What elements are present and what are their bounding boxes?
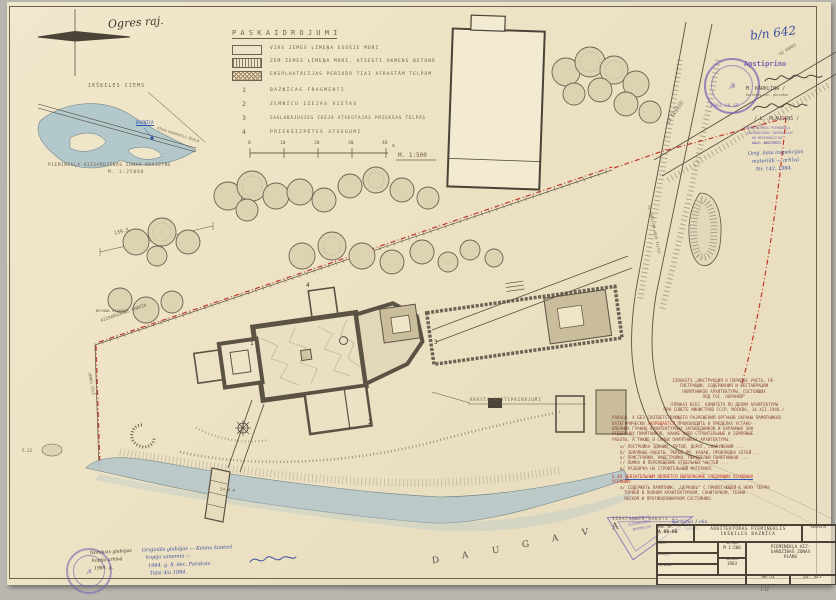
date-value: 1963	[718, 562, 746, 567]
section-label: § 49	[612, 474, 622, 479]
legend-title: P A S K A I D R O J U M I	[232, 29, 337, 39]
right-note: Nr. 142, 1984.	[756, 165, 793, 172]
inset-caption: PIEMINEKĻA AIZSARDZĪBAS ZONAS NOVIETNE	[48, 163, 171, 168]
signature-bottom	[248, 552, 298, 568]
approver-name-2: / L. PLAUCIŅŠ /	[754, 116, 799, 122]
extract-heading: ПОД ГОС. ОХРАНОЙ“	[612, 394, 836, 399]
drawing-title: PLĀNS	[746, 555, 835, 560]
inset-caption-scale: M. 1:25000	[108, 170, 144, 175]
approver-name-1-sub: Kultūras min. pārstāve	[746, 93, 788, 97]
paragraph-text: БЕЗ СООТВЕТСТВУЮЩЕГО РАЗРЕШЕНИЯ ОРГАНОВ …	[637, 415, 781, 420]
outbuilding-1	[556, 396, 584, 432]
river-name-letter: A	[551, 534, 559, 545]
title-block-cell: AB-51	[745, 574, 791, 585]
sheet-number: AB-51	[761, 575, 774, 580]
river-name-letter: U	[491, 546, 500, 557]
bank-reinforcement-label: KRASTA NOSTIPRINĀJUMI	[470, 397, 542, 402]
monument-name: IKŠĶILES BAZNĪCA	[694, 532, 802, 537]
mound	[689, 193, 721, 266]
row-label: Zīmēja	[658, 552, 670, 556]
office-line: AIZSARDZĪBAS INSPEKCIJAS	[747, 131, 793, 135]
extract-order: ПРИ СОВЕТЕ МИНИСТРОВ СССР, МОСКВА, 14.XI…	[612, 407, 836, 412]
church-ruins	[187, 276, 433, 448]
bottom-note-black: 1984. g.	[94, 566, 113, 572]
river-name-letter: G	[521, 540, 530, 551]
legend-num-label: SAGLABĀJUSIES IEEJA ATSEGTAJĀS PRIEKŠAS …	[270, 116, 426, 121]
scale-ratio: M. 1:500	[398, 152, 427, 159]
approve-word: Apstiprinu	[744, 60, 786, 68]
scanned-site-plan-sheet: Ogres raj. b/n 642 P A S K A I D R O J U…	[0, 0, 836, 600]
title-block-cell: PIEMINEKĻA AIZ- SARDZĪBAS ZONAS PLĀNS	[745, 541, 836, 576]
project-number: A 80-60	[658, 530, 694, 535]
title-block-cell: 63. VII	[789, 574, 836, 585]
pencil-note: VII	[760, 586, 769, 593]
approver-name-1: M. KĀRKLIŅA /	[746, 86, 785, 92]
scale-tick-10: 10	[280, 141, 286, 146]
sheet-page: 63. VII	[803, 575, 822, 580]
legend-swatch-label: EKSPLUATĀCIJAS PERIODĀ TIAI ATRASTĀM TEL…	[270, 72, 432, 77]
signature-1	[764, 72, 824, 86]
paragraph-text: КАТЕГОРИЧЕСКИ	[612, 421, 647, 426]
legend-swatch-period	[232, 71, 262, 81]
signature-2	[752, 100, 808, 114]
scale-tick-40: 40	[382, 141, 388, 146]
scale-unit: m	[392, 144, 395, 149]
river-name-letter: D	[431, 556, 440, 567]
scale-value: M 1:500	[718, 546, 746, 551]
bottom-note-blue: Talsi 4/a 1984.	[150, 569, 187, 576]
list-item: д/ РАЗБОРКА НА СТРОИТЕЛЬНЫЙ МАТЕРИАЛ.	[612, 466, 836, 471]
legend-swatch-label: VIRS ZEMES LĪMEŅA ESOŠIE MŪRI	[270, 46, 379, 51]
scale-tick-20: 20	[314, 141, 320, 146]
legend-num-label: PRIEKŠIZPĒTES ATSEGUMI	[270, 130, 362, 135]
legend-swatch-underground	[232, 58, 262, 68]
office-line: ARHITEKTŪRAS PIEMINEKĻU	[746, 126, 790, 130]
row-label: Sast.	[658, 541, 668, 545]
office-line: UN RESTAURĀCIJAS	[752, 136, 783, 140]
plan-number-1: 1	[250, 340, 254, 347]
plan-number-2: 2	[368, 419, 372, 426]
legend-num: 1	[242, 86, 246, 94]
paragraph-text: ПРОИЗВОДИТЬ В ПРЕДЕЛАХ УСТАНО-	[675, 421, 753, 426]
office-line: GALV. ARHITEKTS	[752, 141, 781, 145]
paragraph-text: РАБОТЫ, А ТАКЖЕ В САМЫХ ПАМЯТНИКАХ АРХИТ…	[612, 437, 836, 442]
row-label: Pārbaud.	[658, 563, 673, 567]
inset-map	[38, 92, 205, 168]
existing-building	[447, 14, 545, 189]
legend-num: 3	[242, 114, 246, 122]
legend-swatch-label: ZEM ZEMES LĪMEŅA MŪRI, ATSEGTI AKMENS BE…	[270, 59, 436, 64]
inset-village-label: IKŠĶILES CIEMS	[88, 84, 145, 89]
instruction-extract: IZRAKSTS „ИНСТРУКЦИЯ О ПОРЯДКЕ УЧЕТА, РЕ…	[612, 378, 836, 501]
legend-num-label: ZEMNĪCU IZEJAS VIETAS	[270, 102, 357, 107]
section-heading: ОБЯЗАТЕЛЬНЫМ ЯВЛЯЕТСЯ ВЫПОЛНЕНИЕ СЛЕДУЮЩ…	[625, 474, 754, 480]
dimension-54: 54.8 m	[220, 486, 235, 492]
legend-swatch-walls	[232, 45, 262, 55]
spot-elevation: 5.22	[22, 448, 32, 453]
river-name-letter: V	[581, 528, 589, 539]
control-label: Kontrolē	[802, 526, 835, 530]
legend-num-label: BAZNĪCAS FRAGMENTI	[270, 88, 345, 93]
river-name-letter: A	[461, 551, 469, 562]
plan-number-3: 3	[434, 339, 438, 346]
scale-tick-30: 30	[348, 141, 354, 146]
plan-number-4: 4	[306, 282, 310, 289]
legend-num: 2	[242, 100, 246, 108]
scale-tick-0: 0	[248, 141, 251, 146]
inset-site-label: BAZNĪCA	[136, 120, 154, 126]
title-block: Pas. Nr. A 80-60 ARHITEKTŪRAS PIEMINEKLI…	[656, 524, 836, 585]
title-block-cell	[657, 574, 747, 585]
stamp-date: 1963. 16. III	[710, 104, 739, 109]
paragraph-text-red: ЗАПРЕЩАЕТСЯ	[647, 421, 675, 426]
legend-num: 4	[242, 128, 246, 136]
concrete-posts-label: BETONA STABIŅI	[96, 308, 128, 313]
survey-point-icon	[235, 420, 251, 436]
paragraph-label: PARAGR. X	[612, 415, 635, 420]
